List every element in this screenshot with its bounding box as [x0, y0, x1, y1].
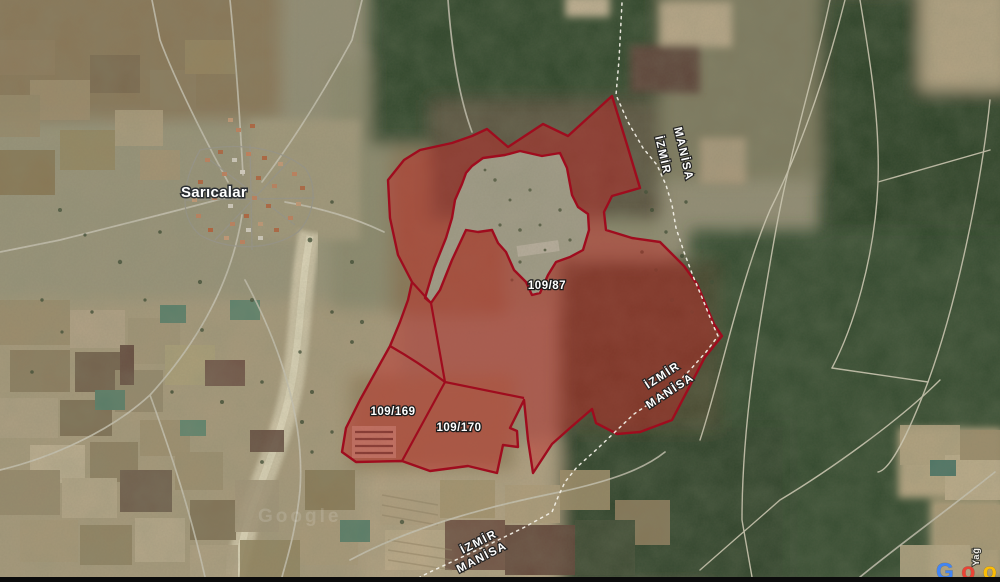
google-logo[interactable]: G o o g l e [936, 558, 1000, 577]
google-watermark: Google [258, 506, 341, 527]
parcel-label-109-87: 109/87 [528, 280, 566, 292]
google-logo-letter: o [961, 558, 976, 577]
google-logo-letter: G [936, 558, 954, 577]
village-label: Sarıcalar [181, 184, 247, 201]
google-logo-letter: o [983, 558, 998, 577]
map-canvas[interactable]: Sarıcalar 109/87 109/169 109/170 MANİSA … [0, 0, 1000, 577]
parcel-label-109-170: 109/170 [436, 422, 481, 434]
parcel-label-109-169: 109/169 [370, 406, 415, 418]
